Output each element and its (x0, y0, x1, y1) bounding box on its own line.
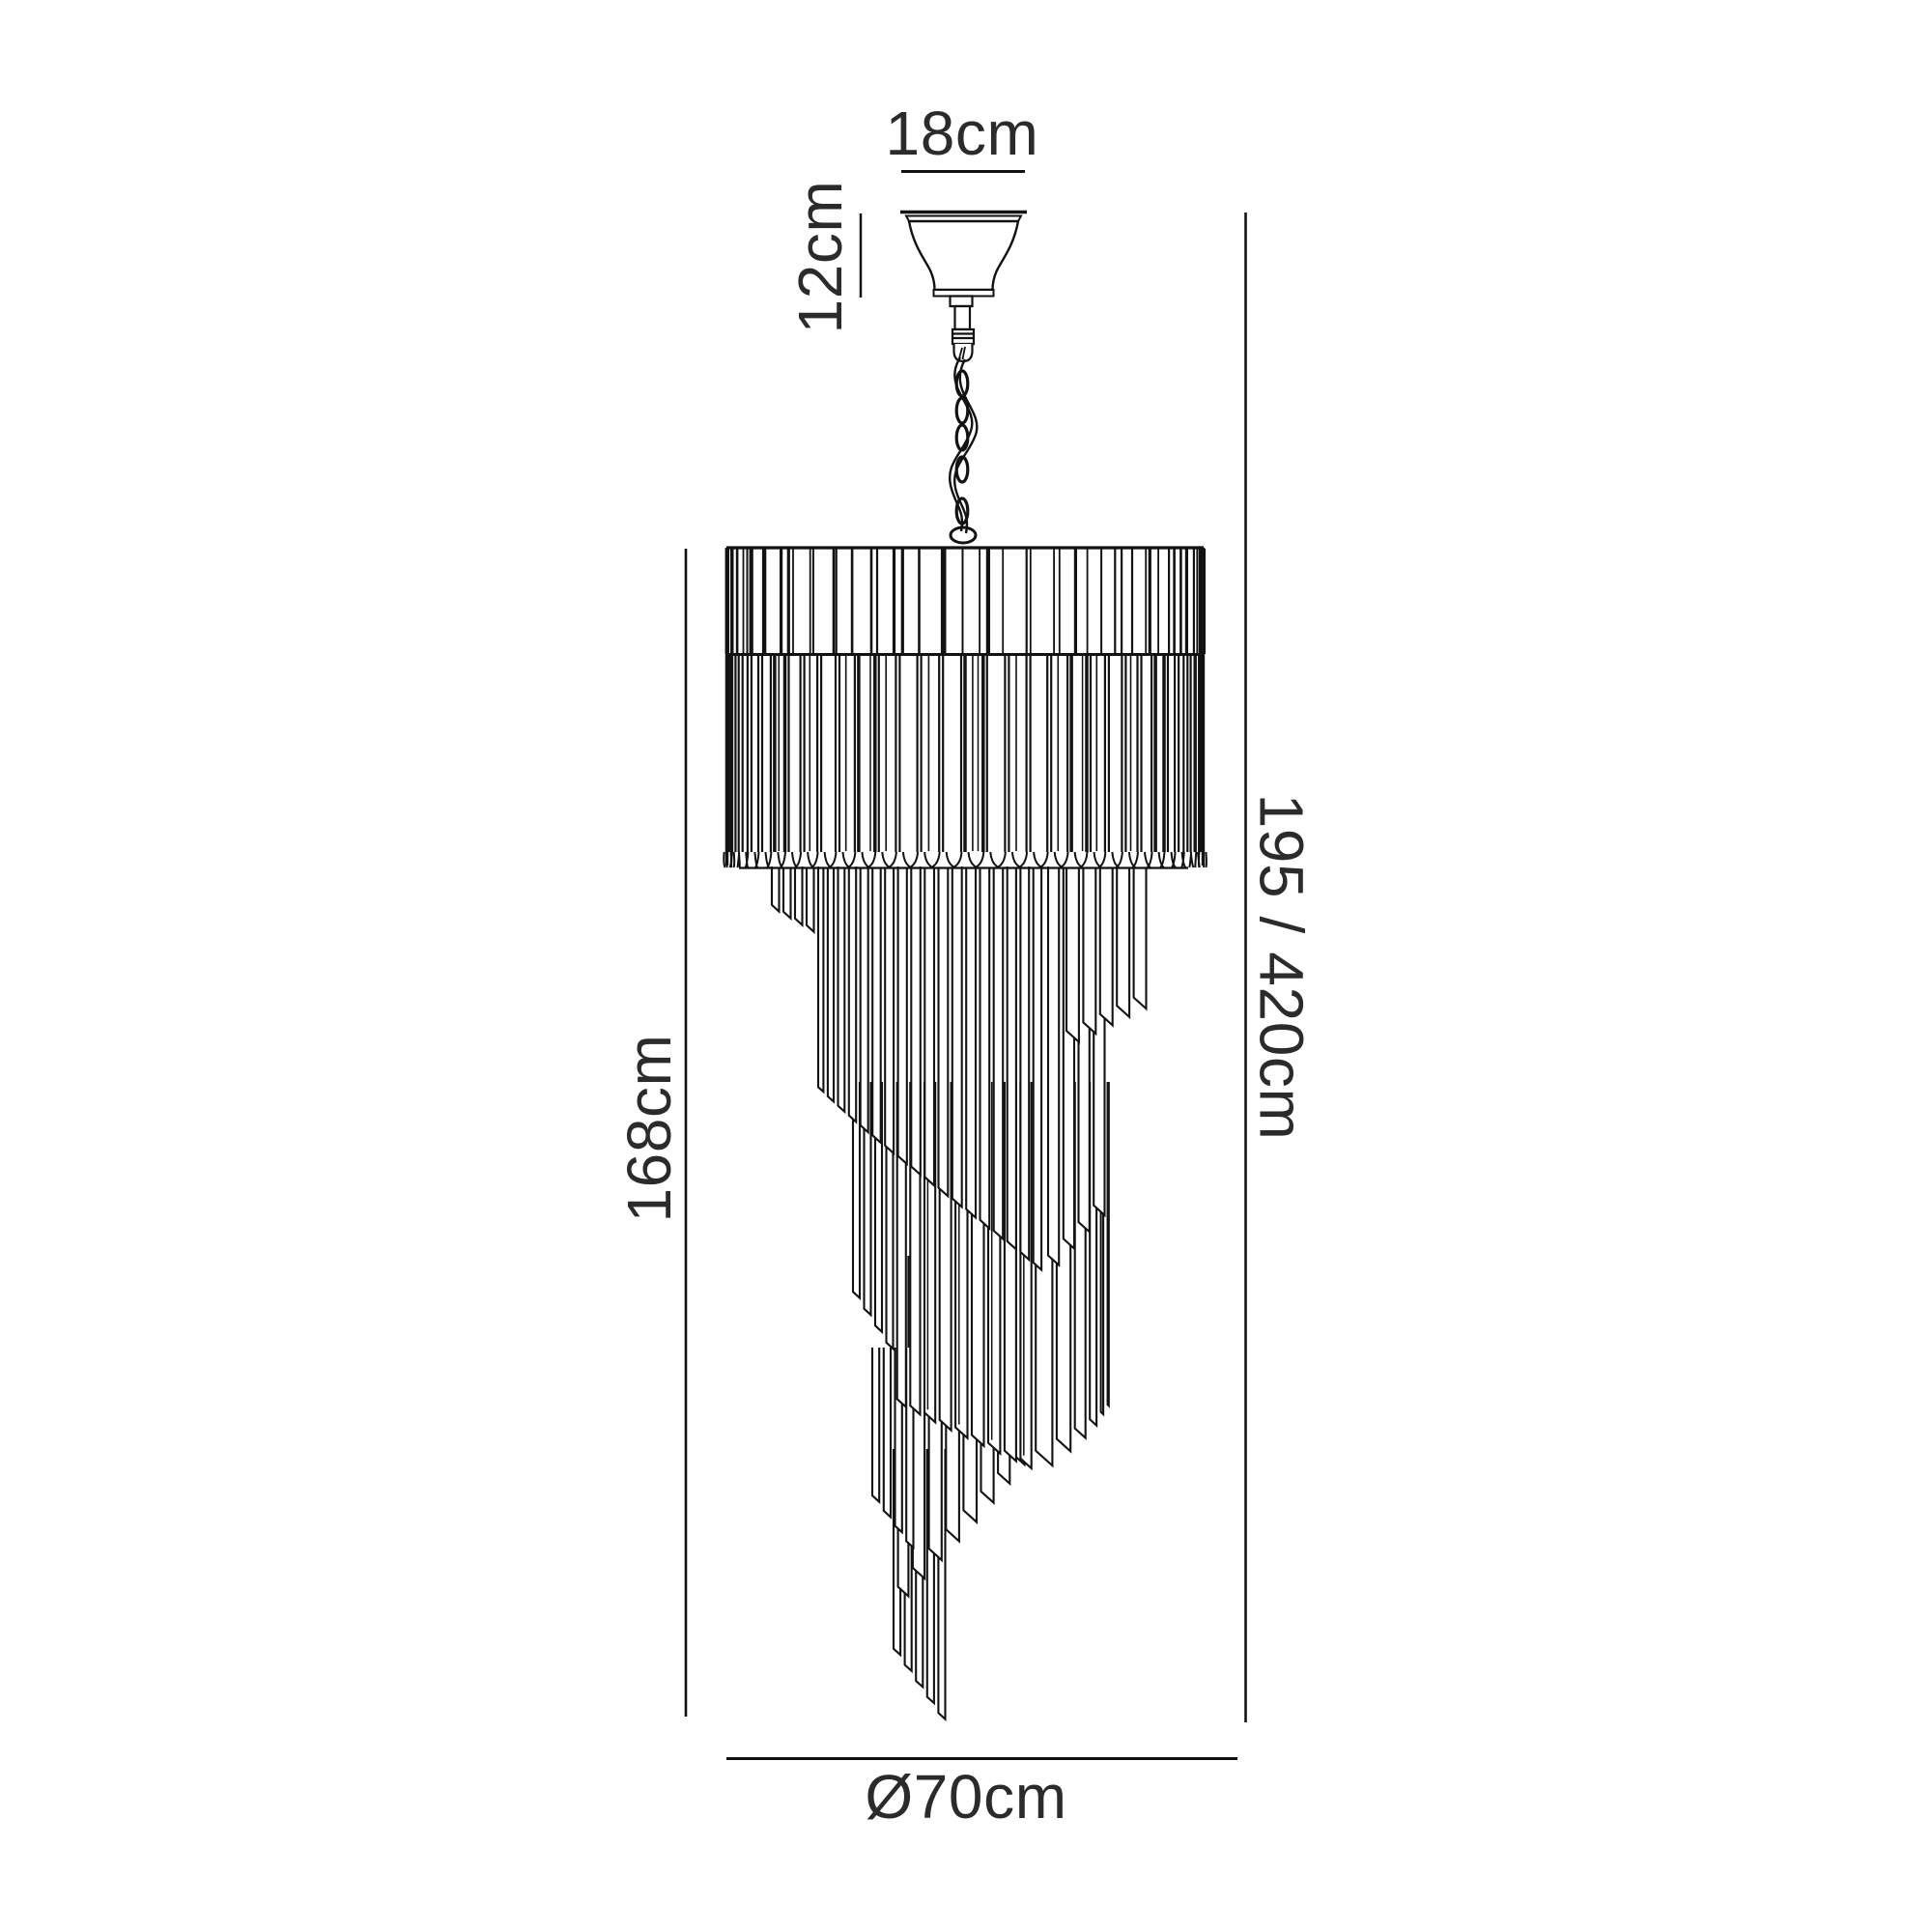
svg-text:195 / 420cm: 195 / 420cm (1247, 794, 1317, 1141)
svg-text:Ø70cm: Ø70cm (865, 1762, 1066, 1832)
svg-text:18cm: 18cm (886, 99, 1039, 168)
svg-text:168cm: 168cm (614, 1034, 684, 1222)
svg-text:12cm: 12cm (785, 181, 855, 334)
